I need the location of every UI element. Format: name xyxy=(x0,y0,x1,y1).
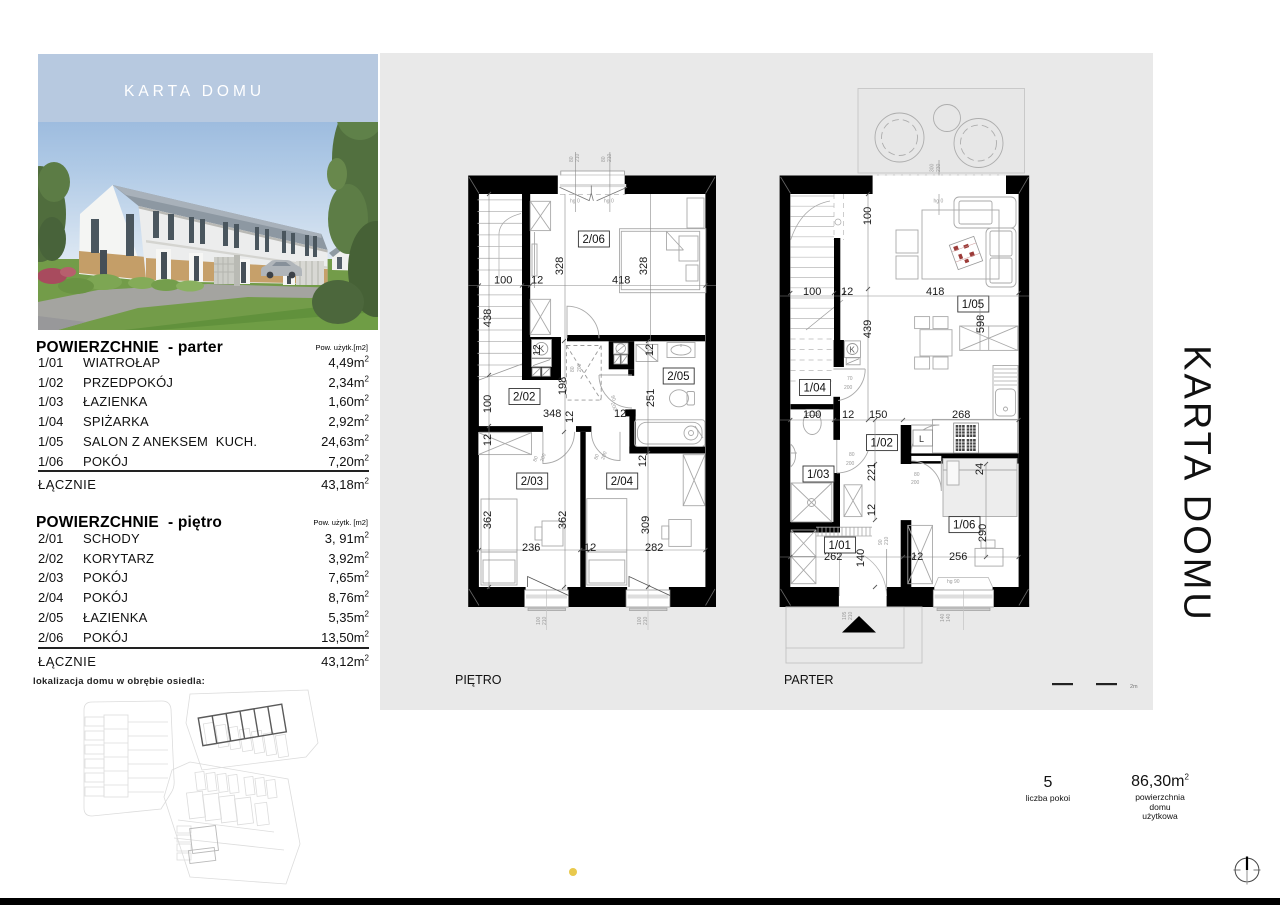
svg-text:1/04: 1/04 xyxy=(804,383,827,395)
svg-text:198: 198 xyxy=(557,377,569,395)
svg-text:24: 24 xyxy=(974,463,986,475)
svg-text:210: 210 xyxy=(575,153,581,162)
svg-text:210: 210 xyxy=(607,153,613,162)
svg-text:418: 418 xyxy=(612,275,630,287)
svg-text:140: 140 xyxy=(855,549,867,567)
svg-text:12: 12 xyxy=(482,434,494,446)
svg-text:140: 140 xyxy=(946,613,952,622)
svg-text:12: 12 xyxy=(531,275,543,287)
svg-text:210: 210 xyxy=(643,616,649,625)
svg-text:100: 100 xyxy=(803,286,821,298)
svg-text:12: 12 xyxy=(866,504,878,516)
svg-text:439: 439 xyxy=(862,320,874,338)
svg-text:418: 418 xyxy=(926,286,944,298)
svg-text:200: 200 xyxy=(577,363,583,372)
svg-text:12: 12 xyxy=(564,411,576,423)
svg-text:L: L xyxy=(919,434,924,444)
svg-text:328: 328 xyxy=(554,257,566,275)
svg-text:K: K xyxy=(850,346,856,355)
svg-text:282: 282 xyxy=(645,542,663,554)
svg-text:12: 12 xyxy=(911,551,923,563)
svg-text:hg 0: hg 0 xyxy=(604,199,614,205)
svg-text:200: 200 xyxy=(846,461,855,467)
svg-text:80: 80 xyxy=(849,452,855,458)
svg-text:210: 210 xyxy=(884,536,890,545)
svg-text:2/02: 2/02 xyxy=(513,392,535,404)
svg-text:230: 230 xyxy=(936,163,942,172)
svg-text:328: 328 xyxy=(638,257,650,275)
svg-text:12: 12 xyxy=(842,409,854,421)
svg-text:KARTA DOMU: KARTA DOMU xyxy=(124,83,265,100)
svg-text:1/02: 1/02 xyxy=(871,438,893,450)
svg-text:309: 309 xyxy=(640,516,652,534)
svg-text:200: 200 xyxy=(911,480,920,486)
svg-text:210: 210 xyxy=(848,611,854,620)
svg-text:70: 70 xyxy=(847,376,853,382)
svg-text:100: 100 xyxy=(482,395,494,413)
svg-text:150: 150 xyxy=(869,409,887,421)
svg-text:251: 251 xyxy=(645,389,657,407)
svg-text:1/06: 1/06 xyxy=(953,520,975,532)
svg-text:hg 0: hg 0 xyxy=(934,199,944,205)
svg-text:2/06: 2/06 xyxy=(583,234,605,246)
svg-text:1/05: 1/05 xyxy=(962,299,984,311)
svg-text:210: 210 xyxy=(542,616,548,625)
svg-text:100: 100 xyxy=(803,409,821,421)
svg-text:12: 12 xyxy=(644,344,656,356)
svg-text:348: 348 xyxy=(543,408,561,420)
svg-text:hg 90: hg 90 xyxy=(947,579,960,585)
svg-text:200: 200 xyxy=(844,385,853,391)
svg-text:300: 300 xyxy=(930,163,936,172)
svg-text:1/03: 1/03 xyxy=(807,469,829,481)
svg-text:12: 12 xyxy=(841,286,853,298)
svg-text:PIĘTRO: PIĘTRO xyxy=(455,673,502,687)
svg-text:362: 362 xyxy=(557,511,569,529)
svg-text:268: 268 xyxy=(952,409,970,421)
svg-text:2m: 2m xyxy=(1130,684,1138,690)
svg-text:438: 438 xyxy=(482,309,494,327)
svg-text:598: 598 xyxy=(975,315,987,333)
svg-text:2/03: 2/03 xyxy=(521,476,543,488)
svg-text:12: 12 xyxy=(637,455,649,467)
svg-text:362: 362 xyxy=(482,511,494,529)
svg-text:12: 12 xyxy=(584,542,596,554)
svg-text:12: 12 xyxy=(532,344,543,356)
svg-text:236: 236 xyxy=(522,542,540,554)
svg-text:256: 256 xyxy=(949,551,967,563)
svg-text:2/04: 2/04 xyxy=(611,476,634,488)
svg-text:80: 80 xyxy=(570,366,576,372)
svg-text:100: 100 xyxy=(494,275,512,287)
svg-text:PARTER: PARTER xyxy=(784,673,834,687)
svg-text:262: 262 xyxy=(824,551,842,563)
svg-text:290: 290 xyxy=(977,524,989,542)
svg-text:100: 100 xyxy=(862,207,874,225)
svg-text:hg 0: hg 0 xyxy=(570,199,580,205)
svg-text:221: 221 xyxy=(866,463,878,481)
svg-text:2/05: 2/05 xyxy=(667,371,689,383)
svg-text:80: 80 xyxy=(914,472,920,478)
